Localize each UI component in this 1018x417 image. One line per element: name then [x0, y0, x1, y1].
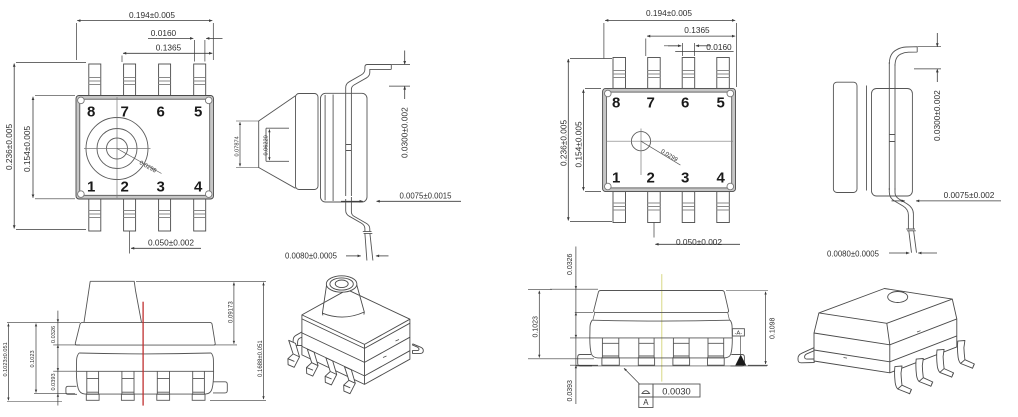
svg-text:0.1023: 0.1023 — [533, 316, 540, 338]
svg-text:4: 4 — [194, 179, 203, 196]
svg-text:0.050±0.002: 0.050±0.002 — [676, 237, 722, 247]
svg-text:0.07874: 0.07874 — [234, 136, 240, 156]
svg-text:0.1688±0.051: 0.1688±0.051 — [258, 340, 264, 377]
svg-text:0.0075±0.0015: 0.0075±0.0015 — [400, 192, 453, 201]
svg-text:0.0393: 0.0393 — [567, 380, 574, 402]
svg-text:0.0080±0.0005: 0.0080±0.0005 — [285, 251, 338, 260]
svg-text:1: 1 — [612, 170, 620, 187]
svg-text:0.1023: 0.1023 — [30, 350, 36, 367]
svg-text:3: 3 — [157, 179, 165, 196]
svg-text:4: 4 — [717, 170, 726, 187]
svg-text:7: 7 — [647, 95, 655, 112]
svg-text:6: 6 — [157, 104, 165, 121]
svg-text:0.154±0.005: 0.154±0.005 — [574, 121, 584, 167]
svg-text:3: 3 — [681, 170, 689, 187]
svg-text:0.09173: 0.09173 — [228, 301, 234, 323]
svg-text:0.1023±0.051: 0.1023±0.051 — [3, 342, 9, 376]
svg-text:0.0300±0.002: 0.0300±0.002 — [932, 90, 942, 141]
svg-text:0.0393: 0.0393 — [51, 373, 57, 390]
svg-text:0.0160: 0.0160 — [151, 28, 177, 38]
svg-text:0.0075±0.002: 0.0075±0.002 — [944, 190, 995, 200]
svg-text:0.236±0.005: 0.236±0.005 — [558, 120, 568, 166]
svg-text:1: 1 — [87, 179, 95, 196]
svg-text:0.0160: 0.0160 — [706, 42, 732, 52]
svg-text:0.194±0.005: 0.194±0.005 — [129, 10, 175, 20]
svg-text:0.050±0.002: 0.050±0.002 — [148, 238, 194, 248]
svg-text:8: 8 — [612, 95, 620, 112]
svg-text:0.0326: 0.0326 — [567, 253, 574, 275]
svg-text:0.0326: 0.0326 — [51, 326, 57, 343]
svg-text:0.1365: 0.1365 — [684, 25, 710, 35]
svg-text:0.236±0.005: 0.236±0.005 — [4, 124, 14, 170]
svg-text:5: 5 — [194, 104, 202, 121]
svg-text:5: 5 — [717, 95, 725, 112]
svg-text:0.0300±0.002: 0.0300±0.002 — [400, 107, 410, 158]
svg-text:A: A — [643, 398, 649, 407]
svg-text:0.1365: 0.1365 — [156, 43, 182, 53]
svg-text:0.0080±0.0005: 0.0080±0.0005 — [827, 250, 880, 259]
svg-text:0.154±0.005: 0.154±0.005 — [22, 126, 32, 172]
svg-text:6: 6 — [681, 95, 689, 112]
svg-text:2: 2 — [121, 179, 129, 196]
svg-text:0.1098: 0.1098 — [770, 317, 777, 339]
svg-text:0.194±0.005: 0.194±0.005 — [646, 8, 692, 18]
svg-text:2: 2 — [647, 170, 655, 187]
svg-text:0.0030: 0.0030 — [662, 386, 690, 396]
svg-text:0.06220: 0.06220 — [264, 135, 270, 155]
svg-text:-A-: -A- — [735, 330, 743, 336]
svg-text:8: 8 — [87, 104, 95, 121]
